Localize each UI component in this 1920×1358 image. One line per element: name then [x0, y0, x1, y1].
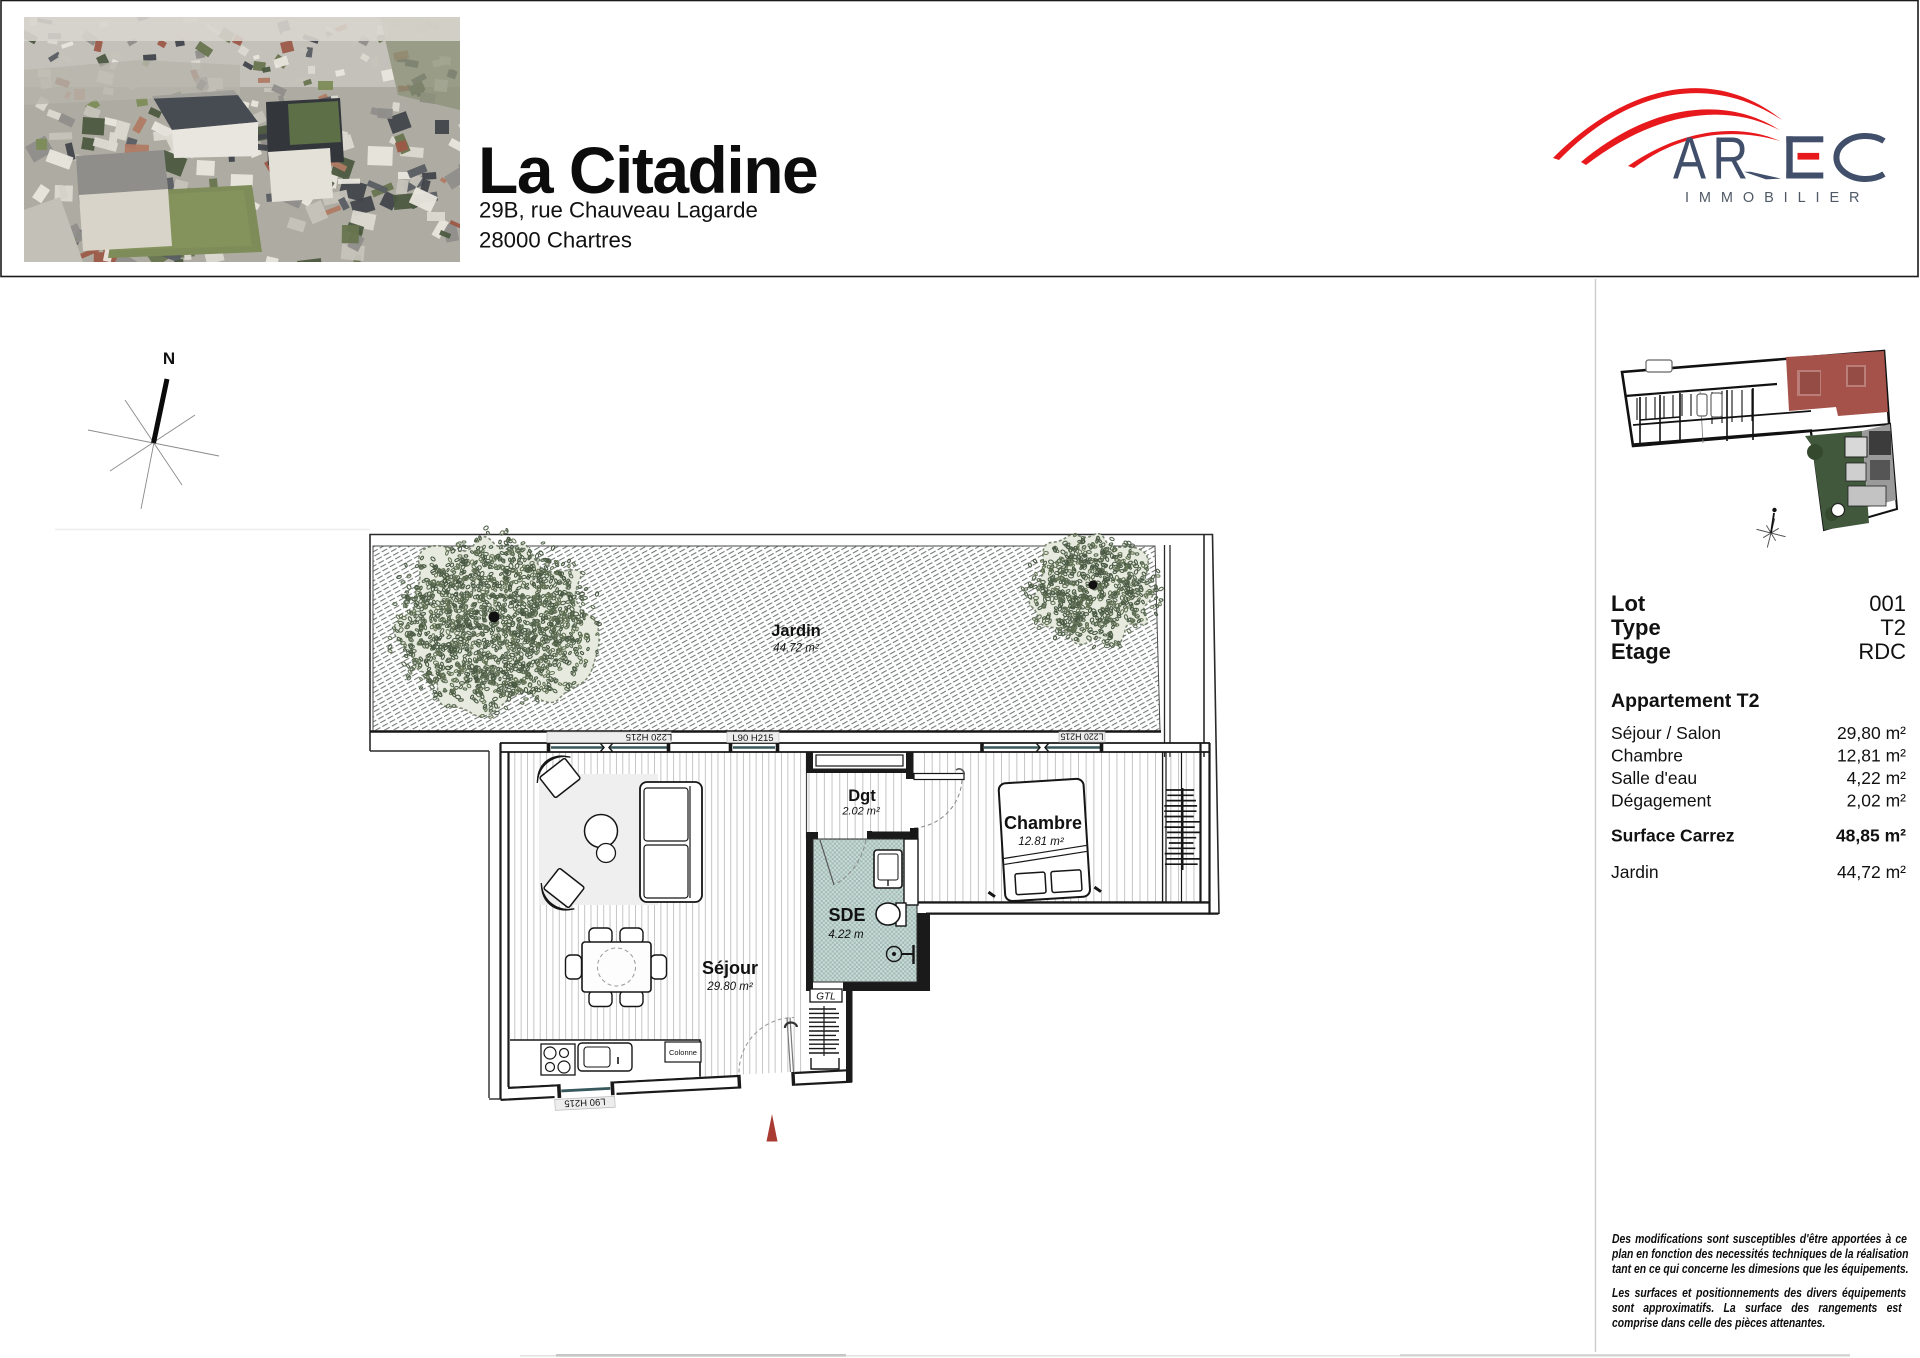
svg-text:Surface Carrez: Surface Carrez [1611, 826, 1735, 846]
svg-text:44.72 m²: 44.72 m² [773, 643, 820, 655]
svg-text:4,22 m²: 4,22 m² [1847, 768, 1906, 788]
svg-text:2.02 m²: 2.02 m² [841, 806, 880, 818]
svg-text:Appartement T2: Appartement T2 [1611, 690, 1760, 712]
svg-text:Dgt: Dgt [848, 787, 876, 805]
svg-text:La Citadine: La Citadine [478, 133, 817, 207]
svg-text:Colonne: Colonne [669, 1048, 697, 1057]
svg-text:001: 001 [1869, 591, 1906, 616]
svg-text:AR: AR [1673, 125, 1755, 191]
svg-text:Jardin: Jardin [771, 622, 821, 640]
svg-text:N: N [163, 349, 175, 368]
svg-text:Chambre: Chambre [1611, 746, 1683, 766]
svg-text:Chambre: Chambre [1004, 813, 1082, 833]
svg-text:L90 H215: L90 H215 [564, 1096, 606, 1109]
svg-text:Jardin: Jardin [1611, 862, 1659, 882]
svg-text:IMMOBILIER: IMMOBILIER [1685, 190, 1869, 206]
svg-text:28000 Chartres: 28000 Chartres [479, 227, 632, 252]
svg-text:T2: T2 [1880, 615, 1906, 640]
svg-text:48,85 m²: 48,85 m² [1836, 826, 1906, 846]
svg-text:Etage: Etage [1611, 639, 1671, 664]
svg-text:12,81 m²: 12,81 m² [1837, 746, 1906, 766]
svg-text:Salle d'eau: Salle d'eau [1611, 768, 1697, 788]
svg-text:Type: Type [1611, 615, 1661, 640]
svg-text:2,02 m²: 2,02 m² [1847, 791, 1906, 811]
svg-text:Lot: Lot [1611, 591, 1646, 616]
svg-text:RDC: RDC [1858, 639, 1906, 664]
svg-text:L220 H215: L220 H215 [626, 731, 672, 742]
svg-text:GTL: GTL [816, 992, 835, 1003]
svg-text:Séjour: Séjour [702, 958, 758, 978]
svg-text:12.81 m²: 12.81 m² [1018, 836, 1065, 848]
svg-text:L90 H215: L90 H215 [732, 733, 773, 744]
svg-text:L220 H215: L220 H215 [1060, 732, 1103, 742]
svg-text:Séjour / Salon: Séjour / Salon [1611, 723, 1721, 743]
svg-text:4.22 m: 4.22 m [828, 929, 864, 941]
svg-text:29.80 m²: 29.80 m² [706, 981, 754, 993]
svg-text:Dégagement: Dégagement [1611, 791, 1711, 811]
svg-text:29,80 m²: 29,80 m² [1837, 723, 1906, 743]
svg-text:44,72 m²: 44,72 m² [1837, 862, 1906, 882]
svg-text:29B, rue Chauveau Lagarde: 29B, rue Chauveau Lagarde [479, 198, 758, 223]
svg-text:SDE: SDE [828, 905, 865, 925]
